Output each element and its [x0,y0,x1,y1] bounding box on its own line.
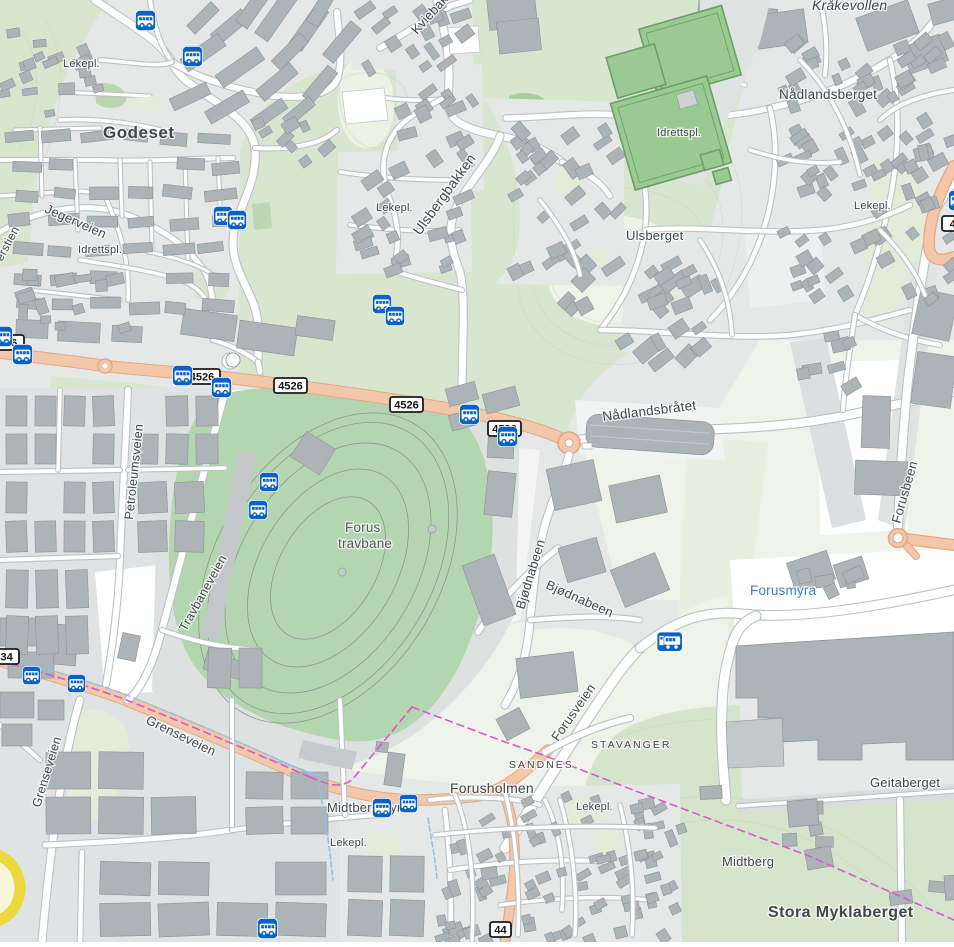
svg-text:Idrettspl.: Idrettspl. [78,244,122,256]
svg-text:Midtbergmyrå: Midtbergmyrå [327,800,409,815]
svg-text:STAVANGER: STAVANGER [591,739,671,751]
svg-text:Nådlandsberget: Nådlandsberget [779,87,877,102]
svg-text:Kråkevollen: Kråkevollen [812,0,887,13]
svg-text:4526: 4526 [278,380,302,392]
svg-text:Midtberg: Midtberg [722,854,774,869]
svg-text:Lekepl.: Lekepl. [854,200,891,212]
svg-text:Forusholmen: Forusholmen [450,780,534,796]
svg-text:534: 534 [0,651,14,663]
svg-text:4526: 4526 [950,218,954,230]
svg-text:Lekepl.: Lekepl. [576,801,613,813]
svg-text:Godeset: Godeset [103,123,175,142]
svg-text:SANDNES: SANDNES [509,759,574,771]
svg-text:Stora Myklaberget: Stora Myklaberget [768,904,914,921]
svg-text:Ulsberget: Ulsberget [626,228,684,243]
svg-text:Forusmyra: Forusmyra [750,583,817,598]
svg-text:Geitaberget: Geitaberget [870,775,940,790]
svg-text:Lekepl.: Lekepl. [376,202,413,214]
svg-text:Lekepl.: Lekepl. [63,58,100,70]
svg-text:4526: 4526 [394,399,418,411]
svg-text:44: 44 [494,924,507,936]
svg-text:Forus: Forus [345,520,381,535]
svg-text:Lekepl.: Lekepl. [330,837,367,849]
svg-text:4526: 4526 [190,371,214,383]
svg-text:travbane: travbane [338,536,392,551]
svg-text:Idrettspl.: Idrettspl. [657,127,701,139]
